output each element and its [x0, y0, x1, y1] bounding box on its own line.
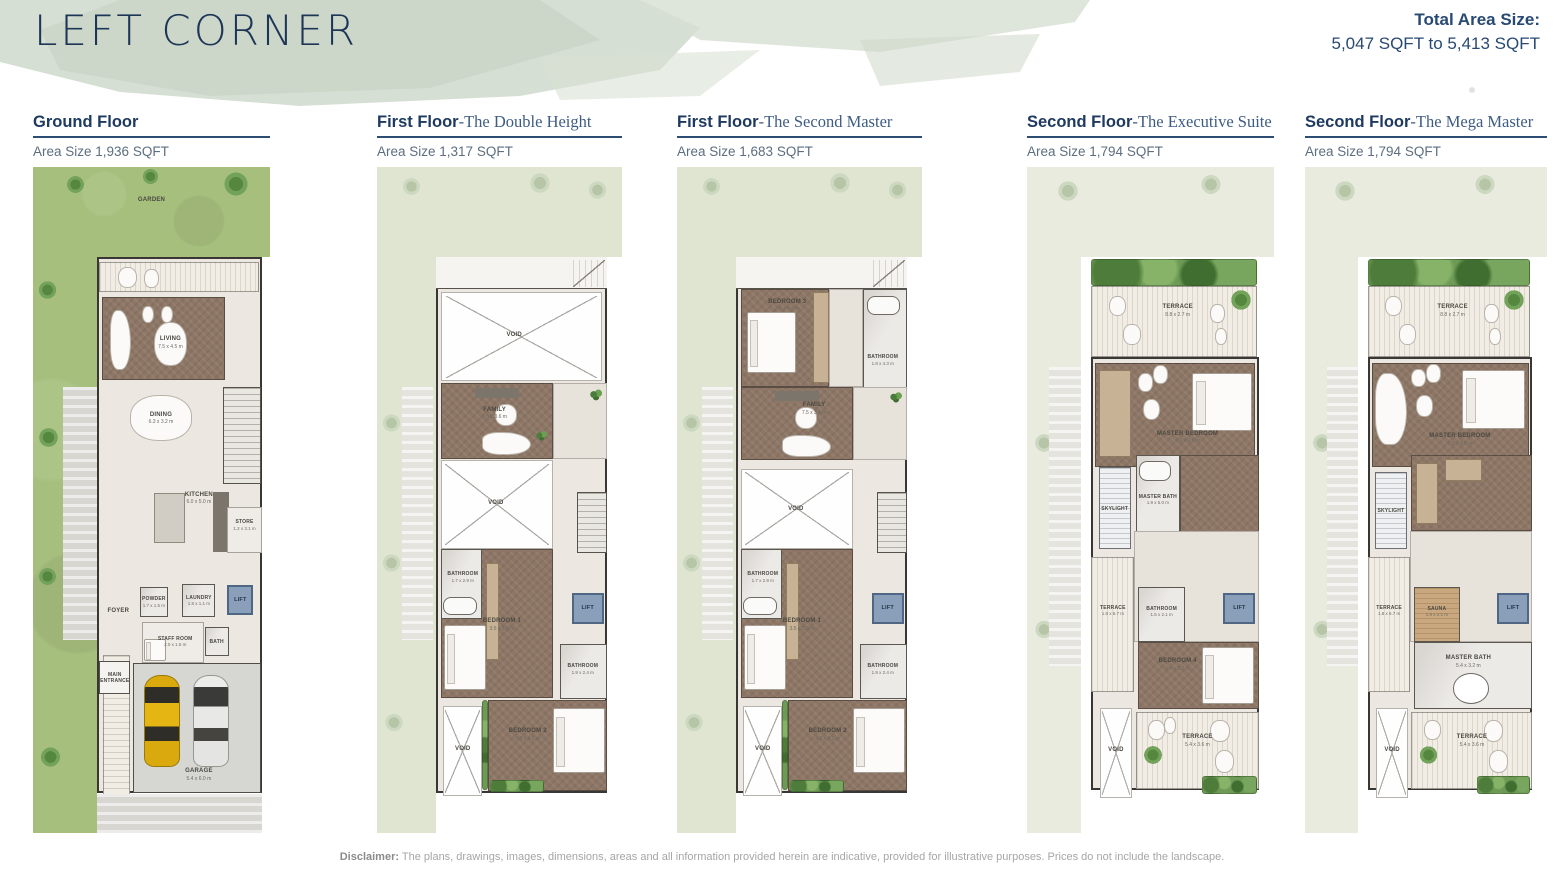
terrace-side [1091, 557, 1134, 692]
plan-header: First Floor-The Double Height [377, 112, 622, 138]
tree [1503, 289, 1525, 311]
plan-header: Second Floor-The Executive Suite [1027, 112, 1274, 138]
lift-text: LIFT [1507, 605, 1519, 612]
palm-tree [588, 180, 608, 199]
plan-subtitle: -The Executive Suite [1132, 112, 1271, 131]
armchair [161, 306, 173, 324]
lounge-sofa [1375, 373, 1406, 444]
plan-subtitle: -The Second Master [759, 112, 893, 131]
plan-header: First Floor-The Second Master [677, 112, 922, 138]
wardrobe [486, 563, 499, 660]
kitchen-island [154, 493, 185, 543]
lift-text: LIFT [1233, 605, 1245, 612]
bathtub [1139, 461, 1171, 481]
rug [1416, 395, 1433, 416]
palm-tree [38, 280, 57, 299]
lounger [1215, 750, 1235, 773]
floor-plan-first-floor-double-height: VOIDFAMILY7.5 x 3.6 mVOIDBATHROOM1.7 x 2… [377, 167, 622, 833]
plant [890, 391, 902, 404]
entrance-label-text: MAIN ENTRANCE [100, 672, 129, 685]
hall [829, 289, 863, 387]
void-area [441, 292, 603, 381]
void-area [443, 706, 482, 796]
floor-plan-second-floor-executive-suite: TERRACE8.8 x 2.7 mMASTER BEDROOM4.9 x 4.… [1027, 167, 1274, 833]
palm-tree [702, 177, 722, 196]
family-sofa [782, 435, 831, 458]
side-path [1049, 367, 1081, 667]
palm-tree [1334, 180, 1356, 201]
plan-area-size: Area Size 1,794 SQFT [1027, 144, 1274, 158]
terrace-side [1368, 557, 1410, 692]
tree [1419, 745, 1438, 765]
tv-console [475, 388, 519, 398]
laundry-room [182, 584, 215, 617]
lift-text: LIFT [234, 597, 246, 604]
outdoor-sofa [144, 269, 158, 288]
store-room [227, 507, 261, 554]
plan-subtitle: -The Mega Master [1410, 112, 1533, 131]
bathtub [1453, 673, 1489, 704]
stairs [223, 387, 261, 484]
total-area-value: 5,047 SQFT to 5,413 SQFT [1331, 34, 1540, 54]
stair-run [573, 260, 605, 287]
lounger [1210, 304, 1225, 323]
plan-header: Second Floor-The Mega Master [1305, 112, 1547, 138]
page-title: LEFT CORNER [34, 6, 358, 55]
lounger [1215, 328, 1227, 345]
lift: LIFT [1223, 593, 1255, 624]
lounger [1148, 720, 1165, 740]
stairs [877, 492, 908, 553]
lounger [1489, 750, 1508, 773]
plan-column-first-floor-double-height: First Floor-The Double Height Area Size … [377, 112, 622, 833]
palm-tree [38, 567, 57, 586]
disclaimer: Disclaimer: The plans, drawings, images,… [0, 851, 1564, 863]
lounger [1489, 328, 1501, 345]
palm-tree [402, 177, 422, 196]
side-path [702, 387, 734, 640]
rug [154, 322, 187, 366]
floor-plan-ground-floor: GARDENLIVING7.5 x 4.5 mDINING6.3 x 3.2 m… [33, 167, 270, 833]
lift: LIFT [1497, 593, 1528, 624]
family-table [795, 407, 817, 429]
bed [744, 625, 786, 690]
lounger [1385, 296, 1402, 317]
lift: LIFT [872, 593, 904, 624]
bed [747, 312, 796, 373]
palm-tree [684, 713, 704, 732]
lounger [1123, 324, 1140, 345]
lift: LIFT [572, 593, 604, 624]
armchair [1411, 369, 1426, 388]
wardrobe [813, 292, 829, 383]
plan-area-size: Area Size 1,317 SQFT [377, 144, 622, 158]
palm-tree [40, 746, 61, 767]
void-area [441, 460, 554, 549]
wardrobe [786, 563, 799, 660]
void-area [1100, 708, 1132, 799]
lounger [1399, 324, 1416, 345]
palm-tree [223, 171, 249, 197]
plan-name: Ground Floor [33, 113, 138, 131]
disclaimer-text: The plans, drawings, images, dimensions,… [402, 851, 1224, 863]
bathtub [867, 296, 900, 315]
lounger [1210, 720, 1230, 743]
armchair [142, 306, 154, 324]
plan-subtitle: -The Double Height [459, 112, 592, 131]
lounger [1484, 304, 1499, 323]
tv-console [775, 391, 819, 401]
plan-name: Second Floor [1027, 113, 1132, 131]
disclaimer-label: Disclaimer: [340, 851, 399, 863]
floor-plan-first-floor-second-master: BATHROOM1.8 x 4.3 mBEDROOM 33.5 x 4.3 mF… [677, 167, 922, 833]
staff-bed [144, 639, 165, 662]
entrance-label: MAIN ENTRANCE [99, 661, 130, 694]
total-area-label: Total Area Size: [1331, 10, 1540, 30]
lift-text: LIFT [881, 605, 893, 612]
palm-tree [382, 553, 402, 572]
family-sofa [482, 432, 531, 455]
plan-area-size: Area Size 1,683 SQFT [677, 144, 922, 158]
planter [1477, 776, 1530, 794]
floor-plan-second-floor-mega-master: TERRACE8.8 x 2.7 mMASTER BEDROOM7.5 x 4.… [1305, 167, 1547, 833]
lift: LIFT [227, 585, 253, 615]
armchair [1153, 365, 1168, 384]
dining-table [130, 395, 192, 441]
plan-name: First Floor [377, 113, 459, 131]
plan-name: Second Floor [1305, 113, 1410, 131]
kitchen-counter [213, 492, 228, 552]
master-bed [1192, 373, 1251, 430]
armchair [1426, 364, 1441, 383]
palm-tree [888, 180, 908, 199]
dressing [1099, 370, 1131, 457]
palm-tree [682, 553, 702, 572]
bathtub [443, 597, 477, 614]
total-area-size: Total Area Size: 5,047 SQFT to 5,413 SQF… [1331, 10, 1540, 54]
stair-run [873, 260, 905, 287]
planting-strip [790, 780, 844, 792]
palm-tree [682, 413, 702, 432]
plan-column-second-floor-mega-master: Second Floor-The Mega Master Area Size 1… [1305, 112, 1547, 833]
palm-tree [1200, 174, 1222, 195]
driveway [97, 794, 262, 833]
bath-room [205, 627, 229, 656]
plan-header: Ground Floor [33, 112, 270, 138]
wardrobe [1445, 459, 1481, 482]
white-car [193, 675, 229, 767]
bathroom [860, 644, 908, 699]
side-path [1327, 367, 1358, 667]
planter [1202, 776, 1256, 794]
bathroom [1138, 587, 1185, 642]
palm-tree [66, 175, 85, 194]
palm-tree [1474, 174, 1496, 195]
void-area [741, 469, 854, 549]
stairs [577, 492, 608, 553]
roof-planter [1091, 259, 1256, 286]
palm-tree [384, 713, 404, 732]
yellow-car [144, 675, 180, 767]
skylight [1099, 467, 1131, 549]
palm-tree [1057, 180, 1079, 201]
bed [553, 708, 604, 773]
side-path [63, 387, 97, 640]
planting-strip [490, 780, 544, 792]
bathtub [743, 597, 777, 614]
lounger [1424, 720, 1441, 740]
skylight [1375, 472, 1406, 549]
rug [1143, 399, 1160, 420]
palm-tree [529, 172, 551, 193]
plan-name: First Floor [677, 113, 759, 131]
armchair [1138, 373, 1153, 392]
bed [853, 708, 904, 773]
palm-tree [38, 427, 59, 448]
plan-column-ground-floor: Ground Floor Area Size 1,936 SQFT GARDEN… [33, 112, 270, 833]
plan-area-size: Area Size 1,794 SQFT [1305, 144, 1547, 158]
lift-text: LIFT [581, 605, 593, 612]
bathroom [560, 644, 608, 699]
plan-column-second-floor-executive-suite: Second Floor-The Executive Suite Area Si… [1027, 112, 1274, 833]
bed [1202, 647, 1254, 704]
lounger [1109, 296, 1126, 317]
roof-planter [1368, 259, 1530, 286]
bed [444, 625, 486, 690]
plant [590, 388, 602, 401]
plant [536, 430, 547, 441]
master-bed [1462, 370, 1525, 429]
palm-tree [382, 413, 402, 432]
plan-area-size: Area Size 1,936 SQFT [33, 144, 270, 158]
void-area [743, 706, 782, 796]
tree [1143, 745, 1163, 765]
sauna [1414, 587, 1460, 642]
palm-tree [142, 168, 159, 185]
outdoor-sofa [118, 267, 137, 288]
tree [1230, 289, 1252, 311]
palm-tree [829, 172, 851, 193]
plan-column-first-floor-second-master: First Floor-The Second Master Area Size … [677, 112, 922, 833]
side-path [402, 387, 434, 640]
powder-room [140, 587, 168, 617]
wardrobe [1416, 463, 1438, 524]
hall [1180, 455, 1259, 532]
family-table [495, 404, 517, 426]
void-area [1376, 708, 1407, 799]
